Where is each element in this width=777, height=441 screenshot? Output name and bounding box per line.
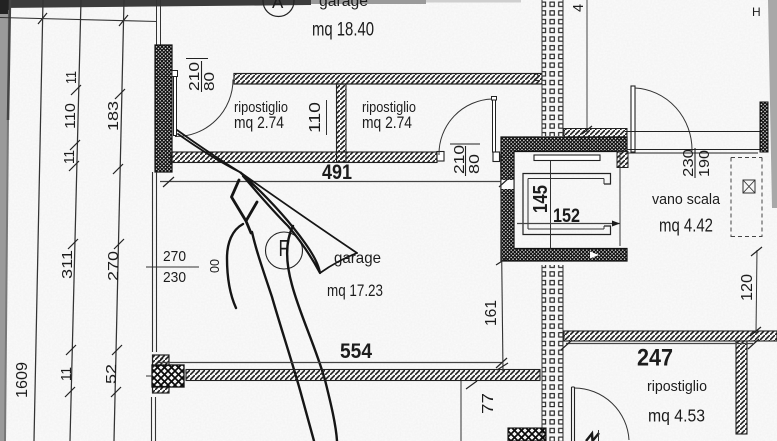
svg-text:ripostiglio: ripostiglio [647,378,707,395]
svg-text:161: 161 [483,300,500,326]
svg-text:vano scala: vano scala [652,192,721,208]
svg-text:00: 00 [208,259,222,273]
svg-text:garage: garage [319,0,368,10]
svg-text:110: 110 [307,102,324,133]
svg-text:mq 4.53: mq 4.53 [648,406,705,426]
svg-text:mq 17.23: mq 17.23 [327,282,383,300]
svg-text:A: A [272,0,284,12]
svg-text:mq 4.42: mq 4.42 [659,216,713,236]
svg-text:11: 11 [61,150,78,164]
svg-text:270: 270 [105,251,122,281]
svg-text:80: 80 [202,72,218,91]
svg-text:247: 247 [637,345,673,372]
svg-text:145: 145 [530,185,552,213]
svg-text:554: 554 [340,339,372,363]
svg-text:110: 110 [62,103,79,129]
svg-text:80: 80 [467,154,483,174]
svg-text:190: 190 [697,150,713,177]
svg-text:mq 2.74: mq 2.74 [234,114,284,132]
svg-text:4: 4 [571,4,587,12]
svg-text:77: 77 [480,393,497,414]
svg-text:491: 491 [322,160,352,184]
svg-text:mq 18.40: mq 18.40 [312,20,374,41]
svg-text:120: 120 [739,274,756,301]
svg-text:2: 2 [533,72,539,84]
svg-text:210: 210 [452,145,468,174]
svg-text:H: H [752,5,761,19]
svg-text:11: 11 [58,367,75,381]
svg-text:210: 210 [187,62,203,91]
svg-text:52: 52 [103,364,120,384]
svg-text:183: 183 [105,101,122,131]
svg-text:230: 230 [163,269,186,286]
svg-text:311: 311 [59,250,76,279]
svg-text:11: 11 [63,71,80,84]
svg-text:230: 230 [681,149,697,177]
svg-text:1609: 1609 [14,362,31,398]
svg-text:mq 2.74: mq 2.74 [362,114,412,132]
svg-text:270: 270 [163,248,186,265]
